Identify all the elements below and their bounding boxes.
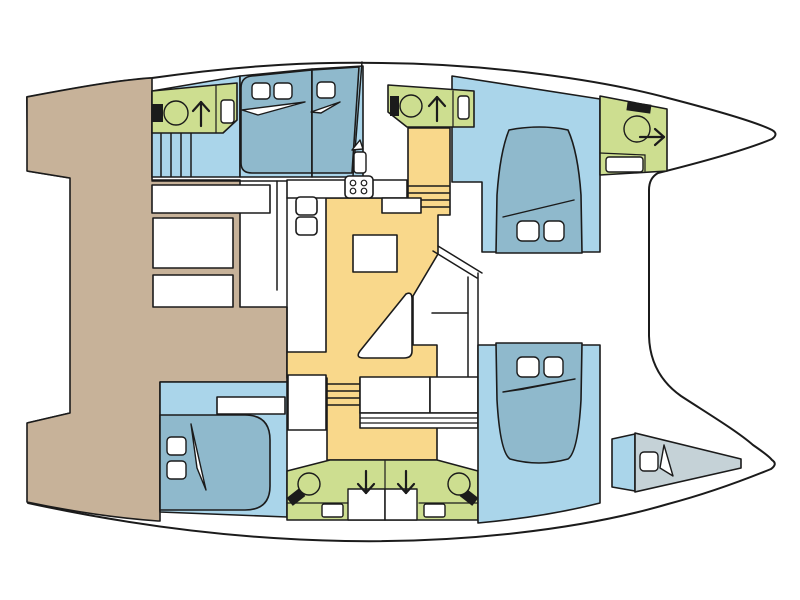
galley-sink-counter: [382, 198, 421, 213]
cabin-shelf: [217, 397, 285, 414]
port-forward-head: [388, 85, 474, 127]
pillow-icon: [252, 83, 270, 99]
nav-station-panel: [288, 375, 326, 430]
catamaran-deck-plan: [0, 0, 800, 600]
toilet-tank-icon: [390, 96, 399, 116]
shower-tray: [385, 489, 417, 520]
pillow-icon: [274, 83, 292, 99]
salon-table: [353, 235, 397, 272]
pillow-icon: [517, 221, 539, 241]
toilet-icon: [298, 473, 320, 495]
cockpit-bench: [153, 275, 233, 307]
forward-bow-head: [600, 96, 667, 175]
pillow-icon: [640, 452, 658, 471]
sink-icon: [458, 96, 469, 119]
pillow-icon: [544, 221, 564, 241]
galley-seat: [296, 217, 317, 235]
sink-icon: [606, 157, 643, 172]
sink-icon: [322, 504, 343, 517]
bow-passage-floor: [612, 434, 635, 491]
toilet-icon: [164, 101, 188, 125]
toilet-icon: [448, 473, 470, 495]
mast-step-locker: [354, 152, 366, 173]
nav-locker: [430, 377, 478, 413]
cockpit-bench: [153, 218, 233, 268]
nav-seat: [360, 377, 430, 413]
pillow-icon: [317, 82, 335, 98]
pillow-icon: [517, 357, 539, 377]
pillow-icon: [167, 461, 186, 479]
cockpit-bench: [152, 185, 270, 213]
sink-icon: [221, 100, 234, 123]
sink-icon: [424, 504, 445, 517]
salon-entry-track: [360, 413, 478, 428]
toilet-icon: [624, 116, 650, 142]
toilet-icon: [400, 95, 422, 117]
toilet-tank-icon: [152, 104, 163, 122]
stove-icon: [345, 176, 373, 198]
deck-plan-canvas: [0, 0, 800, 600]
starboard-twin-heads: [287, 460, 479, 520]
port-aft-head: [152, 83, 237, 133]
pillow-icon: [167, 437, 186, 455]
galley-seat: [296, 197, 317, 215]
pillow-icon: [544, 357, 563, 377]
